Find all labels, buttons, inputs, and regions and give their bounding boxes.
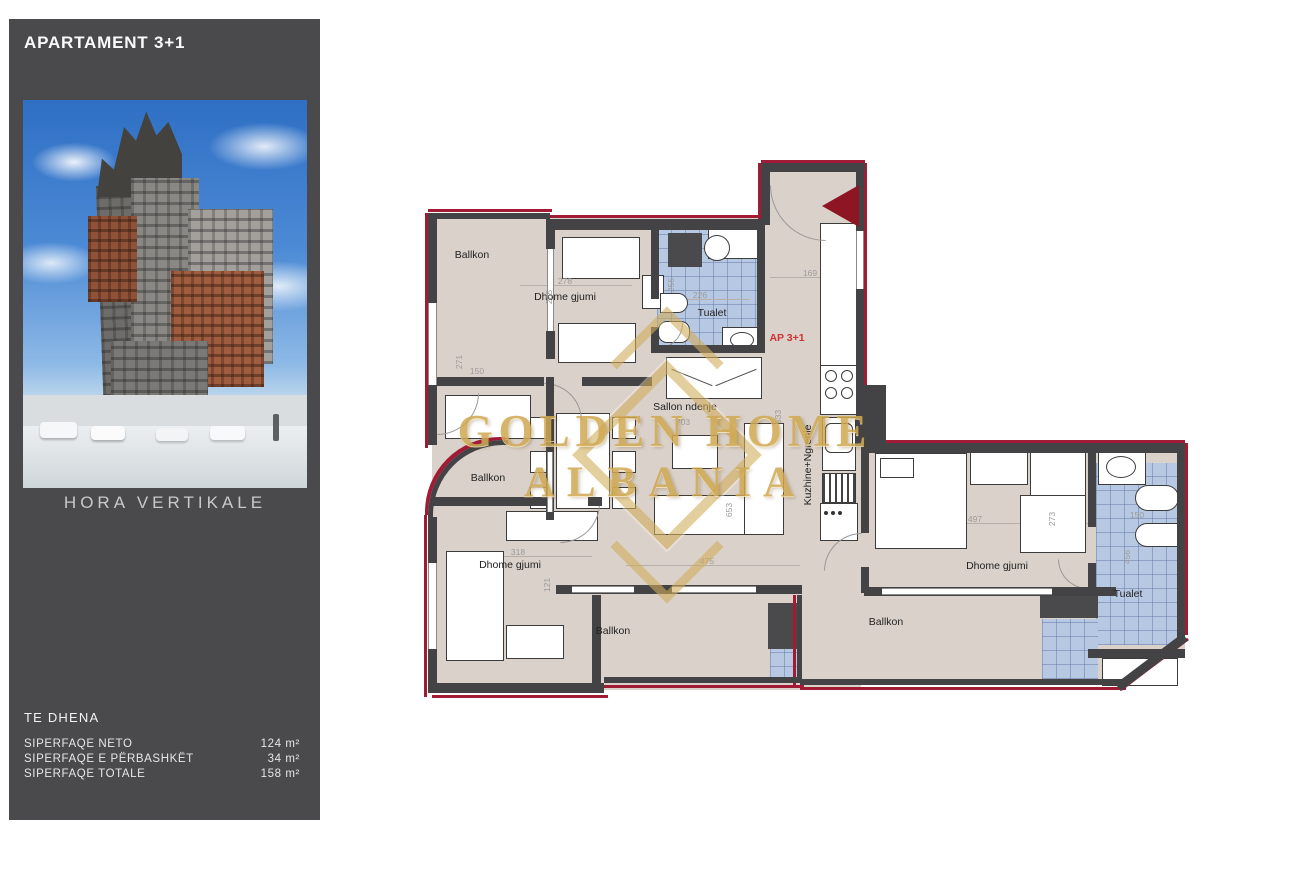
dimension: 318 <box>511 547 525 557</box>
dimension: 271 <box>454 355 464 369</box>
burner <box>841 370 853 382</box>
apartment-tag: AP 3+1 <box>769 332 804 344</box>
outer-wall <box>432 683 604 693</box>
partition-wall <box>592 595 601 685</box>
bathtub <box>1135 485 1179 511</box>
sidebar-panel: APARTAMENT 3+1 HORA VERTIKALE TE DHENA S… <box>9 19 320 820</box>
burner <box>825 387 837 399</box>
balcony-parapet <box>800 679 1122 685</box>
shelf <box>970 451 1028 485</box>
toilet <box>1135 523 1179 547</box>
data-row-value: 34 m² <box>268 753 300 765</box>
partition-wall <box>1088 649 1185 658</box>
outer-wall <box>428 219 437 303</box>
car <box>40 422 77 438</box>
partition-wall <box>546 223 555 249</box>
room-label-ballkon: Ballkon <box>869 616 903 628</box>
window <box>672 586 756 593</box>
building-photo <box>23 100 307 488</box>
dimension: 169 <box>803 268 817 278</box>
dimension: 121 <box>542 578 552 592</box>
balcony-parapet <box>797 595 802 683</box>
hob-dots <box>824 511 828 515</box>
boundary-line <box>800 687 1126 690</box>
car <box>91 426 125 440</box>
basin <box>1106 456 1136 478</box>
boundary-line <box>1185 443 1188 635</box>
entrance-arrow <box>822 185 859 227</box>
dimension: 150 <box>470 366 484 376</box>
balcony-parapet <box>428 213 550 219</box>
outer-wall <box>761 163 770 225</box>
dim-line <box>520 285 632 286</box>
dimension: 150 <box>1130 510 1144 520</box>
dimension: 226 <box>693 290 707 300</box>
outer-wall <box>1177 443 1185 639</box>
room-label-dhome-gjumi: Dhome gjumi <box>479 559 541 571</box>
boundary-line <box>424 515 427 697</box>
washer-door <box>704 235 730 261</box>
data-heading: TE DHENA <box>24 710 99 725</box>
dimension: 497 <box>968 514 982 524</box>
apartment-title: APARTAMENT 3+1 <box>24 33 185 53</box>
data-row: SIPERFAQE E PËRBASHKËT 34 m² <box>24 753 300 765</box>
boundary-line <box>546 215 767 218</box>
watermark: GOLDEN HOME ALBANIA <box>430 405 900 507</box>
floor-plan: Ballkon Dhome gjumi Tualet Sallon ndenje… <box>420 155 1200 715</box>
room-label-dhome-gjumi: Dhome gjumi <box>966 560 1028 572</box>
partition-wall <box>757 219 765 351</box>
data-row-value: 124 m² <box>261 738 300 750</box>
burner <box>841 387 853 399</box>
dimension: 285 <box>544 290 554 304</box>
outer-wall <box>864 443 1185 453</box>
boundary-line <box>428 209 552 212</box>
data-row: SIPERFAQE TOTALE 158 m² <box>24 768 300 780</box>
window <box>882 588 1052 595</box>
window <box>428 563 437 649</box>
desk <box>506 625 564 659</box>
data-row-label: SIPERFAQE TOTALE <box>24 768 145 780</box>
photo-caption: HORA VERTIKALE <box>23 493 307 513</box>
room-label-ballkon: Ballkon <box>455 249 489 261</box>
data-row-label: SIPERFAQE NETO <box>24 738 133 750</box>
room-label-tualet: Tualet <box>698 307 727 319</box>
dimension: 255 <box>666 278 676 292</box>
dimension: 273 <box>1047 512 1057 526</box>
window <box>428 303 437 385</box>
kitchen-counter <box>820 223 858 367</box>
partition-wall <box>546 331 555 359</box>
watermark-line1: GOLDEN HOME <box>430 405 900 457</box>
data-row-value: 158 m² <box>261 768 300 780</box>
window <box>856 231 864 289</box>
window <box>572 586 634 593</box>
boundary-line <box>604 685 804 688</box>
balcony-parapet <box>604 677 802 683</box>
dimension: 456 <box>1122 550 1132 564</box>
data-row: SIPERFAQE NETO 124 m² <box>24 738 300 750</box>
boundary-line <box>793 595 796 687</box>
washing-machine <box>668 233 702 267</box>
boundary-line <box>432 695 608 698</box>
pedestrian <box>273 414 279 441</box>
tower-orange-left <box>88 216 136 301</box>
partition-wall <box>1088 447 1096 527</box>
partition-wall <box>1088 563 1096 591</box>
data-row-label: SIPERFAQE E PËRBASHKËT <box>24 753 194 765</box>
bed-single <box>562 237 640 279</box>
car <box>210 426 244 440</box>
partition-wall <box>651 219 659 299</box>
burner <box>825 370 837 382</box>
partition-wall <box>432 377 544 386</box>
room-label-ballkon: Ballkon <box>596 625 630 637</box>
dimension: 278 <box>558 276 572 286</box>
watermark-line2: ALBANIA <box>430 458 900 507</box>
room-label-tualet: Tualet <box>1114 588 1143 600</box>
car <box>156 428 187 441</box>
outer-wall <box>761 163 865 172</box>
